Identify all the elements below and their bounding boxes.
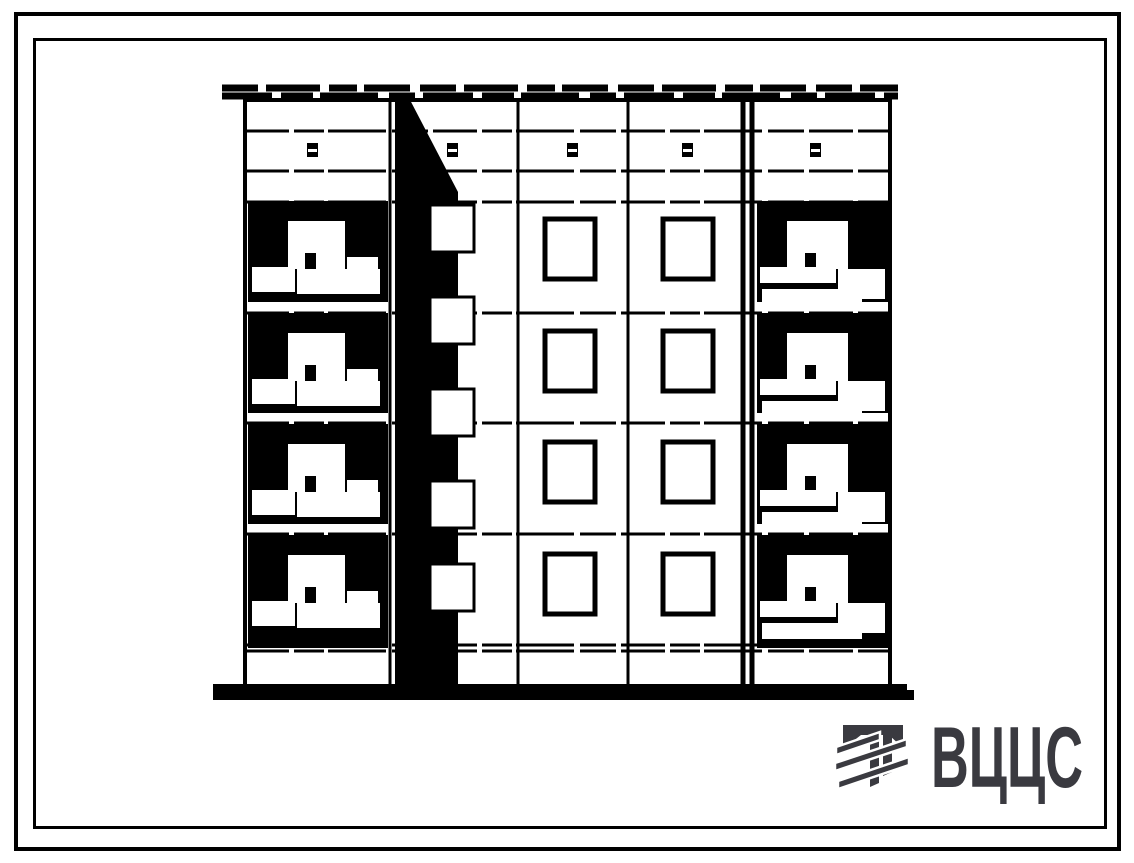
balcony-left-railing: [297, 603, 380, 628]
balcony-left-block: [252, 601, 295, 626]
stair-window: [430, 564, 474, 611]
balcony-right-strip: [760, 267, 836, 283]
stair-window: [430, 205, 474, 252]
vccs-logo-text: ВЦЦС: [931, 710, 1083, 806]
vent-mark-slit: [448, 149, 457, 152]
balcony-right-door: [787, 555, 848, 603]
vent-mark-slit: [811, 149, 820, 152]
balcony-right-strip: [760, 379, 836, 395]
balcony-right-door: [787, 444, 848, 492]
window: [663, 554, 713, 614]
stair-window: [430, 389, 474, 436]
balcony-left-door-notch: [305, 253, 316, 269]
window: [663, 331, 713, 391]
balcony-left-railing: [297, 269, 380, 294]
window: [545, 554, 595, 614]
window: [545, 331, 595, 391]
balcony-left-door-notch: [305, 365, 316, 381]
balcony-right-door-notch: [805, 365, 816, 381]
balcony-left-block: [252, 490, 295, 515]
balcony-right-railing: [762, 289, 862, 305]
balcony-left-strip: [347, 480, 378, 493]
vent-mark-slit: [568, 149, 577, 152]
balcony-left-strip: [347, 369, 378, 382]
balcony-right-door: [787, 333, 848, 381]
balcony-left-door-notch: [305, 587, 316, 603]
balcony-left-door: [288, 333, 345, 381]
balcony-right-door-notch: [805, 253, 816, 269]
balcony-left-door: [288, 221, 345, 269]
balcony-left-block: [252, 379, 295, 404]
stair-window: [430, 297, 474, 344]
vccs-logo: ВЦЦС: [823, 708, 1091, 808]
balcony-left-door: [288, 444, 345, 492]
window: [545, 442, 595, 502]
balcony-left-railing: [297, 381, 380, 406]
window: [545, 219, 595, 279]
window: [663, 442, 713, 502]
ground-bar: [213, 684, 907, 700]
balcony-right-strip: [760, 601, 836, 617]
balcony-left-strip: [347, 257, 378, 270]
balcony-left-strip: [347, 591, 378, 604]
balcony-right-railing: [762, 401, 862, 417]
balcony-left-railing: [297, 492, 380, 517]
stair-window: [430, 481, 474, 528]
balcony-right-railing: [762, 512, 862, 528]
vent-mark-slit: [683, 149, 692, 152]
vent-mark-slit: [308, 149, 317, 152]
balcony-right-railing: [762, 623, 862, 639]
balcony-right-door: [787, 221, 848, 269]
ground-bar-nub: [905, 690, 914, 700]
window: [663, 219, 713, 279]
vccs-logo-mark-icon: [835, 725, 909, 789]
balcony-right-strip: [760, 490, 836, 506]
balcony-right-door-notch: [805, 476, 816, 492]
balcony-left-door-notch: [305, 476, 316, 492]
balcony-left-door: [288, 555, 345, 603]
balcony-left-block: [252, 267, 295, 292]
balcony-right-door-notch: [805, 587, 816, 603]
